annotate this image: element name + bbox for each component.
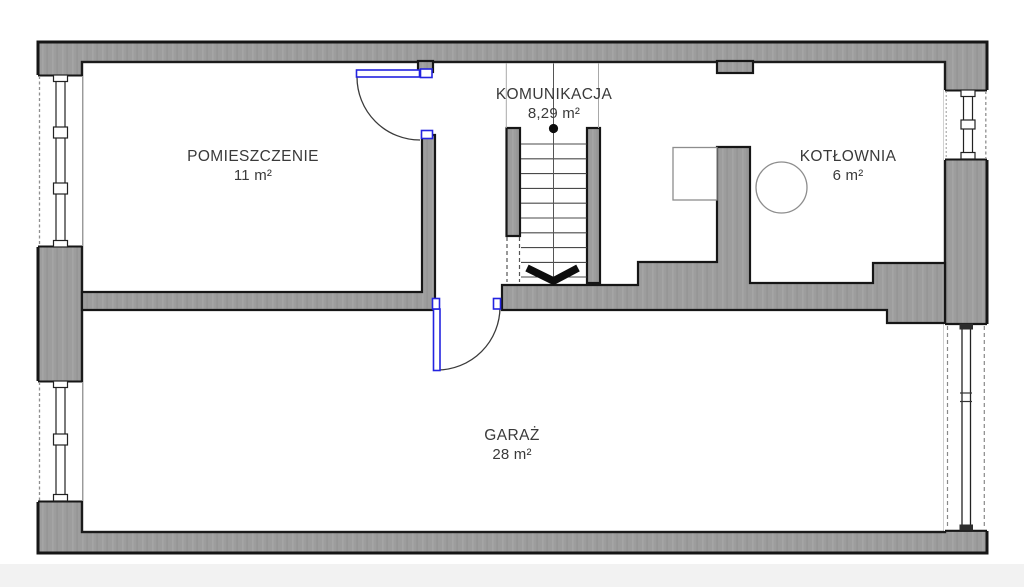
room-label-pomieszczenie: POMIESZCZENIE 11 m² [187,148,319,185]
room-label-garaz: GARAŻ 28 m² [484,427,539,464]
page-bottom-strip [0,564,1024,587]
stair-start-dot [549,124,558,133]
room-area: 28 m² [484,446,539,465]
room-area: 6 m² [800,167,897,186]
room-area: 11 m² [187,167,319,186]
room-area: 8,29 m² [496,105,612,124]
wall-stair-right [587,128,600,283]
room-label-kotlownia: KOTŁOWNIA 6 m² [800,148,897,185]
room-label-komunikacja: KOMUNIKACJA 8,29 m² [496,86,612,123]
wall-kotlownia-jamb-notch [717,61,753,73]
floor-plan: POMIESZCZENIE 11 m² KOMUNIKACJA 8,29 m² … [0,0,1024,587]
wall-stair-left [507,128,521,236]
equipment-box-icon [673,148,717,201]
room-name: POMIESZCZENIE [187,148,319,167]
room-name: GARAŻ [484,427,539,446]
room-name: KOMUNIKACJA [496,86,612,105]
room-name: KOTŁOWNIA [800,148,897,167]
